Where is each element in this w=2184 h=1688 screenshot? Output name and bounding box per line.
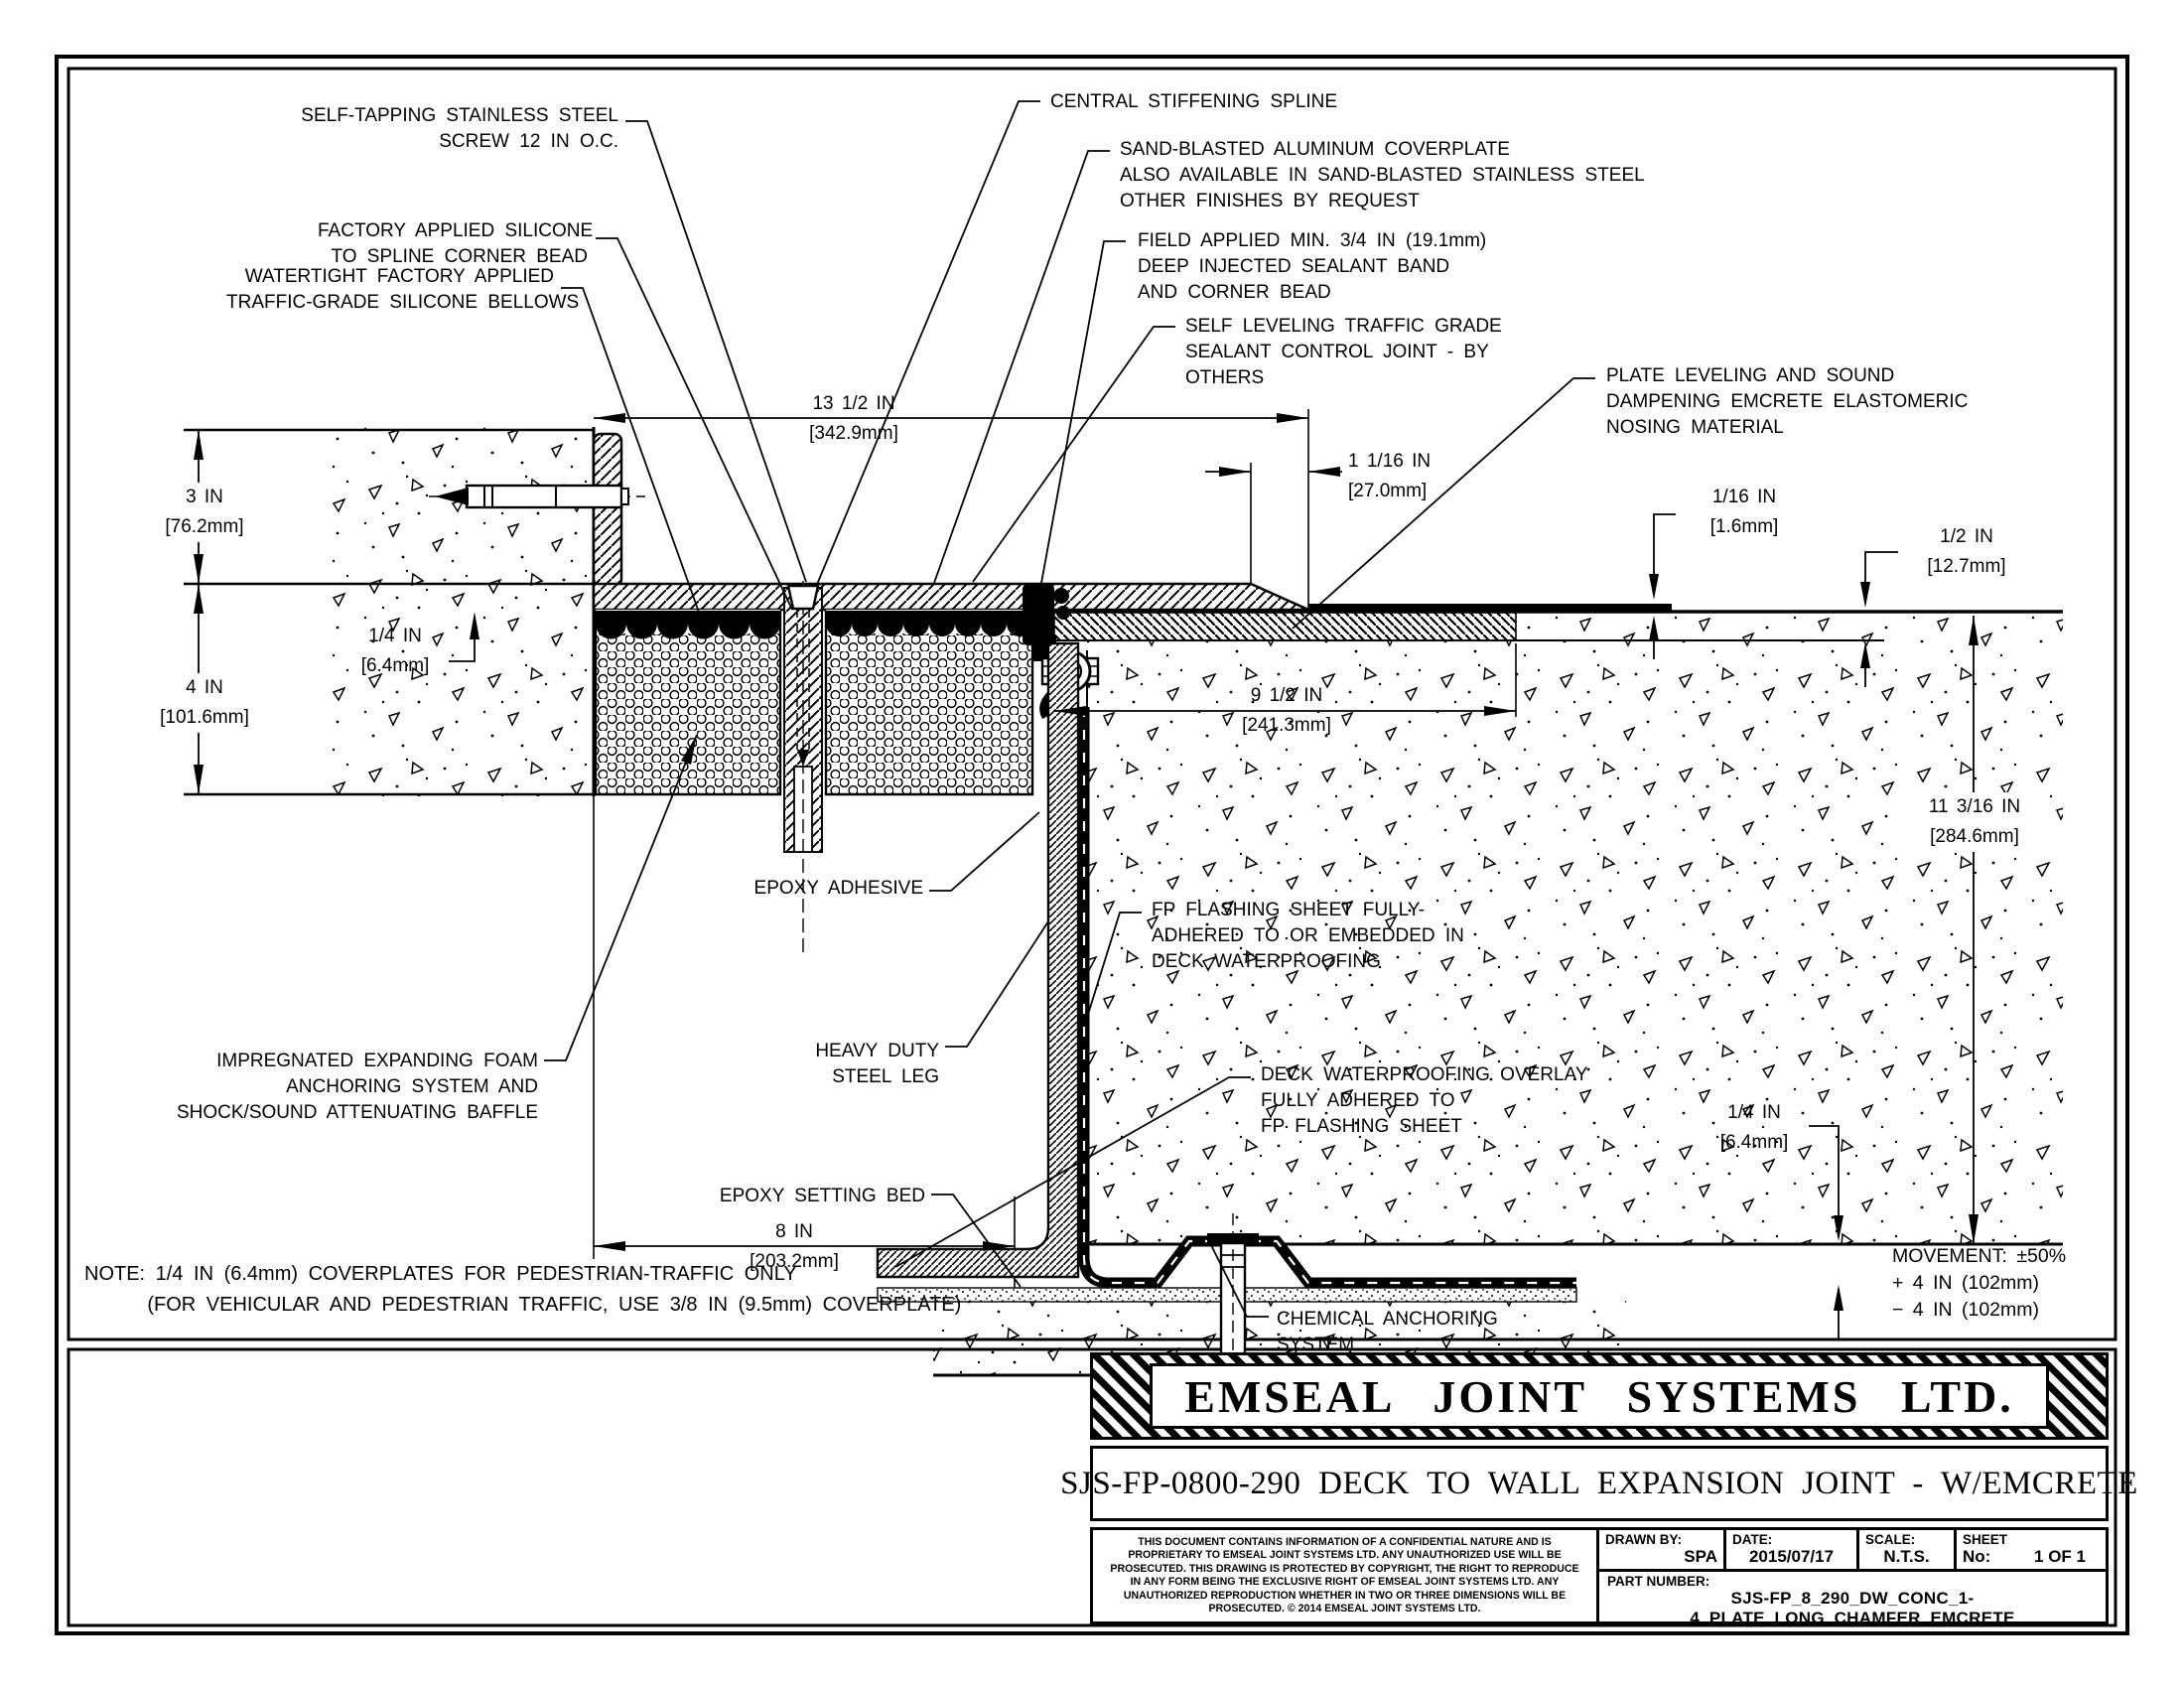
drawing-sheet: SELF-TAPPING STAINLESS STEEL SCREW 12 IN… [0,0,2184,1688]
foam-left [596,610,780,794]
dim-recess-depth: 1/2 IN [12.7mm] [1902,522,2031,582]
date-cell: DATE: 2015/07/17 [1726,1530,1859,1569]
wall-concrete [330,425,594,796]
date-label: DATE: [1732,1532,1850,1547]
company-name: EMSEAL JOINT SYSTEMS LTD. [1150,1363,2049,1429]
callout-flashing: FP FLASHING SHEET FULLY- ADHERED TO OR E… [1152,898,1598,975]
callout-screw: SELF-TAPPING STAINLESS STEEL SCREW 12 IN… [253,103,618,155]
dim-chamfer: 1 1/16 IN [27.0mm] [1348,447,1517,506]
dim-upstand: 3 IN [76.2mm] [145,483,264,542]
scale-cell: SCALE: N.T.S. [1859,1530,1957,1569]
title-block-info: THIS DOCUMENT CONTAINS INFORMATION OF A … [1090,1527,2109,1624]
part-number-label: PART NUMBER: [1607,1574,2098,1589]
drawn-by-label: DRAWN BY: [1605,1532,1717,1547]
part-number-cell: PART NUMBER: SJS-FP_8_290_DW_CONC_1-4_PL… [1599,1572,2106,1630]
callout-coverplate: SAND-BLASTED ALUMINUM COVERPLATE ALSO AV… [1120,137,1696,214]
callout-sealant-band: FIELD APPLIED MIN. 3/4 IN (19.1mm) DEEP … [1138,228,1604,306]
sheet-no-label: No: [1963,1547,1990,1567]
sheet-cell: SHEET No: 1 OF 1 [1957,1530,2106,1569]
dim-nosing-width: 9 1/2 IN [241.3mm] [1187,681,1386,741]
callout-bellows: WATERTIGHT FACTORY APPLIED TRAFFIC-GRADE… [226,264,554,316]
scale-label: SCALE: [1865,1532,1948,1547]
scale-value: N.T.S. [1865,1547,1948,1567]
callout-steel-leg: HEAVY DUTY STEEL LEG [782,1039,939,1090]
callout-control-joint: SELF LEVELING TRAFFIC GRADE SEALANT CONT… [1185,314,1612,391]
waterproofing-overlay-band [1308,604,1672,613]
callout-epoxy-adhesive: EPOXY ADHESIVE [735,876,923,902]
part-number-value: SJS-FP_8_290_DW_CONC_1-4_PLATE_LONG_CHAM… [1607,1589,2098,1628]
dim-plate-thickness: 1/4 IN [6.4mm] [343,622,447,681]
callout-anchor: CHEMICAL ANCHORING SYSTEM [1277,1307,1594,1358]
callout-spline: CENTRAL STIFFENING SPLINE [1050,89,1467,115]
company-banner: EMSEAL JOINT SYSTEMS LTD. [1090,1352,2109,1440]
drawn-by-value: SPA [1605,1547,1717,1567]
callout-epoxy-bed: EPOXY SETTING BED [647,1184,925,1209]
note-text: NOTE: 1/4 IN (6.4mm) COVERPLATES FOR PED… [84,1259,961,1321]
wall-angle-and-coverplate [594,434,1308,610]
disclaimer-text: THIS DOCUMENT CONTAINS INFORMATION OF A … [1093,1530,1599,1621]
date-value: 2015/07/17 [1732,1547,1850,1567]
dim-flashing-gap: 1/4 IN [6.4mm] [1702,1098,1807,1158]
sheet-no-value: 1 OF 1 [2034,1547,2100,1567]
foam-right [826,610,1032,794]
sheet-label: SHEET [1963,1532,2100,1547]
emcrete-nosing-band [1054,613,1516,640]
dim-plate-width: 13 1/2 IN [342.9mm] [754,389,953,449]
movement-text: MOVEMENT: ±50% + 4 IN (102mm) − 4 IN (10… [1892,1243,2120,1324]
callout-foam: IMPREGNATED EXPANDING FOAM ANCHORING SYS… [68,1049,538,1126]
dim-overlay-thickness: 1/16 IN [1.6mm] [1680,483,1809,542]
callout-nosing: PLATE LEVELING AND SOUND DAMPENING EMCRE… [1606,363,2043,441]
callout-silicone-bead: FACTORY APPLIED SILICONE TO SPLINE CORNE… [318,218,588,270]
dim-foam-depth: 4 IN [101.6mm] [139,673,270,733]
coverplate [594,584,1308,610]
dim-blockout-depth: 11 3/16 IN [284.6mm] [1900,792,2049,852]
drawing-title: SJS-FP-0800-290 DECK TO WALL EXPANSION J… [1090,1446,2109,1521]
drawn-by-cell: DRAWN BY: SPA [1599,1530,1726,1569]
callout-overlay: DECK WATERPROOFING OVERLAY FULLY ADHERED… [1261,1062,1688,1140]
